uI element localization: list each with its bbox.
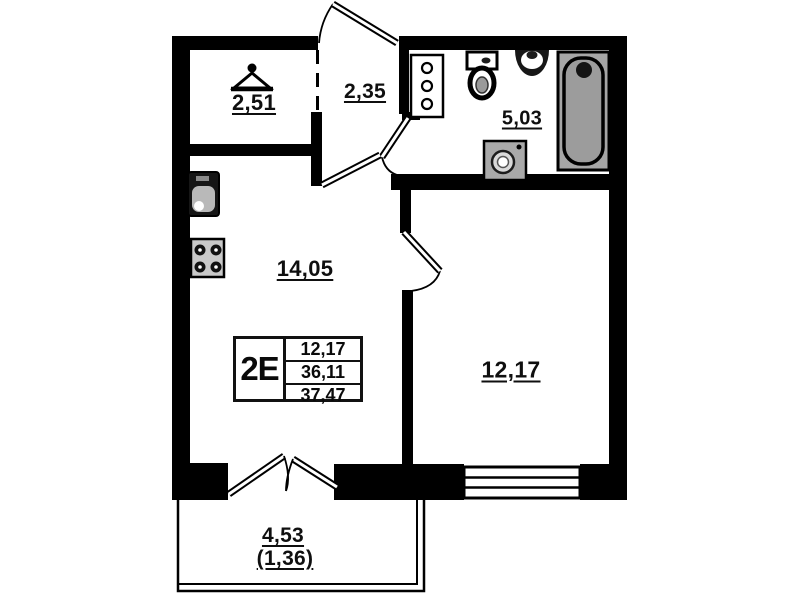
hanger-icon [231,64,273,90]
apartment-info-rows: 12,17 36,11 37,47 [286,339,360,399]
apartment-type-label: 2E [236,339,286,399]
stove-icon [191,239,224,277]
entrance-door [319,4,397,43]
wall-bottom-right-block [580,464,627,500]
toilet-icon [467,52,497,98]
wall-left [172,36,190,500]
wall-bathroom-left [399,50,409,114]
bathtub-icon [558,52,609,170]
info-row-apartment-area: 36,11 [286,362,360,385]
sink-icon [188,172,219,216]
bathroom-area-label: 5,03 [502,108,542,131]
wall-top-left [172,36,318,50]
entrance-door-leaf [333,4,397,43]
apartment-info-table: 2E 12,17 36,11 37,47 [233,336,363,402]
info-row-living-area: 12,17 [286,339,360,362]
bedroom-door [404,232,440,291]
wall-right [609,36,627,500]
balcony-area-label: 4,53 [262,524,304,548]
hall-kitchen-door [322,155,380,185]
wall-interior-lower [402,290,413,466]
bedroom-door-arc [411,271,440,291]
wall-bottom-middle-block [334,464,464,500]
hall-kitchen-door-leaf [322,155,380,185]
floorplan-canvas: 2,51 2,35 5,03 14,05 12,17 4,53 (1,36) 2… [0,0,799,600]
balcony-door-center-arc [284,456,293,491]
wall-hall-stub [311,112,322,186]
wall-top-right [399,36,627,50]
bedroom-door-leaf [404,232,440,271]
wall-wardrobe-bottom [183,144,316,156]
shelf-cabinet-icon [411,55,443,117]
window [464,467,580,498]
info-row-total-area: 37,47 [286,385,360,406]
floorplan-drawing [0,0,799,600]
bathroom-door-leaf [382,118,408,157]
washing-machine-icon [484,141,526,180]
bathroom-door [382,118,408,175]
bathroom-door-arc [382,157,397,175]
hallway-area-label: 2,35 [344,80,386,104]
wall-interior-upper [400,188,411,233]
entrance-door-arc [319,4,333,43]
balcony-reduced-area-label: (1,36) [257,547,314,571]
wardrobe-area-label: 2,51 [232,90,276,116]
kitchen-living-area-label: 14,05 [277,256,334,282]
balcony-door-left-leaf [229,456,284,494]
wall-bottom-left-block [172,463,228,500]
bedroom-area-label: 12,17 [481,357,540,384]
washbasin-icon [515,50,549,76]
balcony-door [229,456,337,494]
balcony-door-right-leaf [293,459,337,487]
